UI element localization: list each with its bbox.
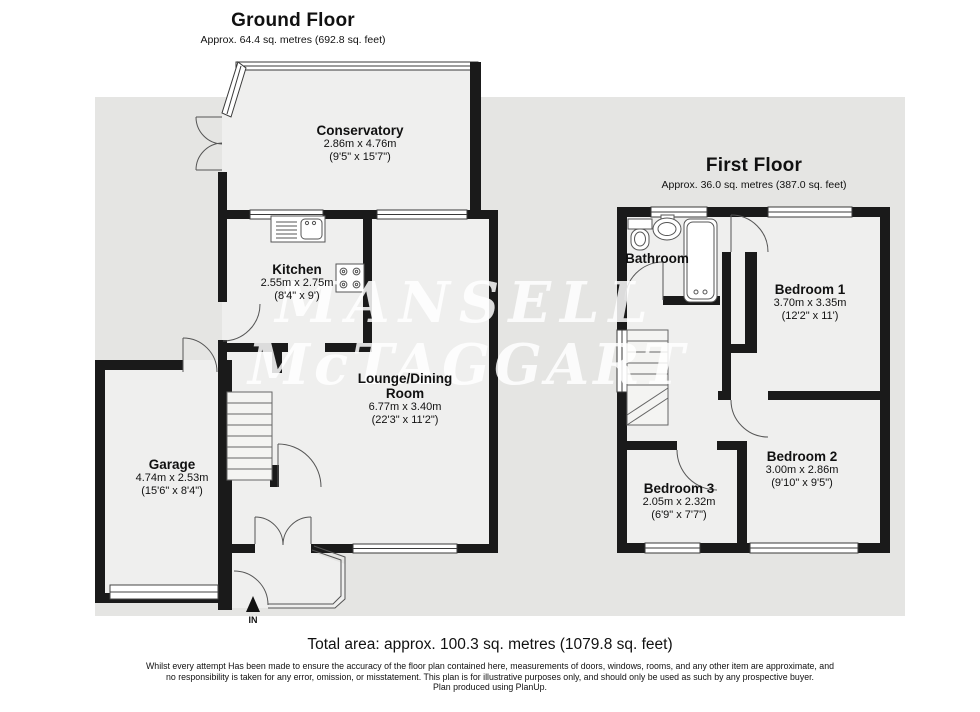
ground-floor-title-block: Ground Floor Approx. 64.4 sq. metres (69… [200, 10, 385, 46]
first-floor-title-block: First Floor Approx. 36.0 sq. metres (387… [661, 155, 846, 191]
room-dim-metric: 3.70m x 3.35m [774, 297, 847, 310]
ground-floor-area: Approx. 64.4 sq. metres (692.8 sq. feet) [200, 34, 385, 46]
garage-door [110, 585, 218, 599]
first-floor-stairs [627, 330, 668, 425]
room-name: Bedroom 1 [774, 282, 847, 297]
room-dim-imperial: (15'6" x 8'4") [136, 485, 209, 498]
room-name: Conservatory [316, 123, 403, 138]
room-name: Garage [136, 457, 209, 472]
total-area-text: Total area: approx. 100.3 sq. metres (10… [0, 636, 980, 654]
room-label-kitchen: Kitchen 2.55m x 2.75m (8'4" x 9') [261, 262, 334, 302]
room-label-garage: Garage 4.74m x 2.53m (15'6" x 8'4") [136, 457, 209, 497]
toilet-icon [628, 219, 652, 250]
floorplan-drawing [0, 0, 980, 712]
produced-by-text: Plan produced using PlanUp. [0, 682, 980, 693]
room-dim-imperial: (12'2" x 11') [774, 310, 847, 323]
disclaimer-text: Whilst every attempt Has been made to en… [140, 661, 840, 682]
room-label-bathroom: Bathroom [625, 251, 689, 266]
room-label-lounge: Lounge/Dining Room 6.77m x 3.40m (22'3" … [346, 371, 464, 426]
room-label-bedroom1: Bedroom 1 3.70m x 3.35m (12'2" x 11') [774, 282, 847, 322]
room-dim-metric: 3.00m x 2.86m [766, 464, 839, 477]
entrance-in-label: IN [249, 615, 258, 625]
room-label-bedroom2: Bedroom 2 3.00m x 2.86m (9'10" x 9'5") [766, 449, 839, 489]
first-floor-title: First Floor [661, 155, 846, 177]
room-dim-imperial: (22'3" x 11'2") [346, 414, 464, 427]
room-dim-metric: 2.55m x 2.75m [261, 277, 334, 290]
bathtub-icon [684, 219, 717, 302]
room-dim-metric: 6.77m x 3.40m [346, 401, 464, 414]
ground-floor-stairs [227, 392, 272, 480]
room-name: Kitchen [261, 262, 334, 277]
stove-icon [336, 264, 364, 292]
first-floor-area: Approx. 36.0 sq. metres (387.0 sq. feet) [661, 179, 846, 191]
kitchen-sink [271, 216, 325, 242]
room-dim-imperial: (9'5" x 15'7") [316, 151, 403, 164]
room-name: Lounge/Dining Room [346, 371, 464, 401]
room-dim-imperial: (8'4" x 9') [261, 290, 334, 303]
room-dim-metric: 2.86m x 4.76m [316, 138, 403, 151]
room-dim-metric: 4.74m x 2.53m [136, 472, 209, 485]
room-name: Bedroom 2 [766, 449, 839, 464]
room-label-bedroom3: Bedroom 3 2.05m x 2.32m (6'9" x 7'7") [643, 481, 716, 521]
room-dim-metric: 2.05m x 2.32m [643, 496, 716, 509]
room-dim-imperial: (9'10" x 9'5") [766, 477, 839, 490]
floorplan-page: MANSELL McTAGGART Ground Floor Approx. 6… [0, 0, 980, 712]
ground-floor-title: Ground Floor [200, 10, 385, 32]
room-name: Bathroom [625, 251, 689, 266]
room-name: Bedroom 3 [643, 481, 716, 496]
room-label-conservatory: Conservatory 2.86m x 4.76m (9'5" x 15'7"… [316, 123, 403, 163]
footer: Total area: approx. 100.3 sq. metres (10… [0, 636, 980, 693]
room-dim-imperial: (6'9" x 7'7") [643, 509, 716, 522]
